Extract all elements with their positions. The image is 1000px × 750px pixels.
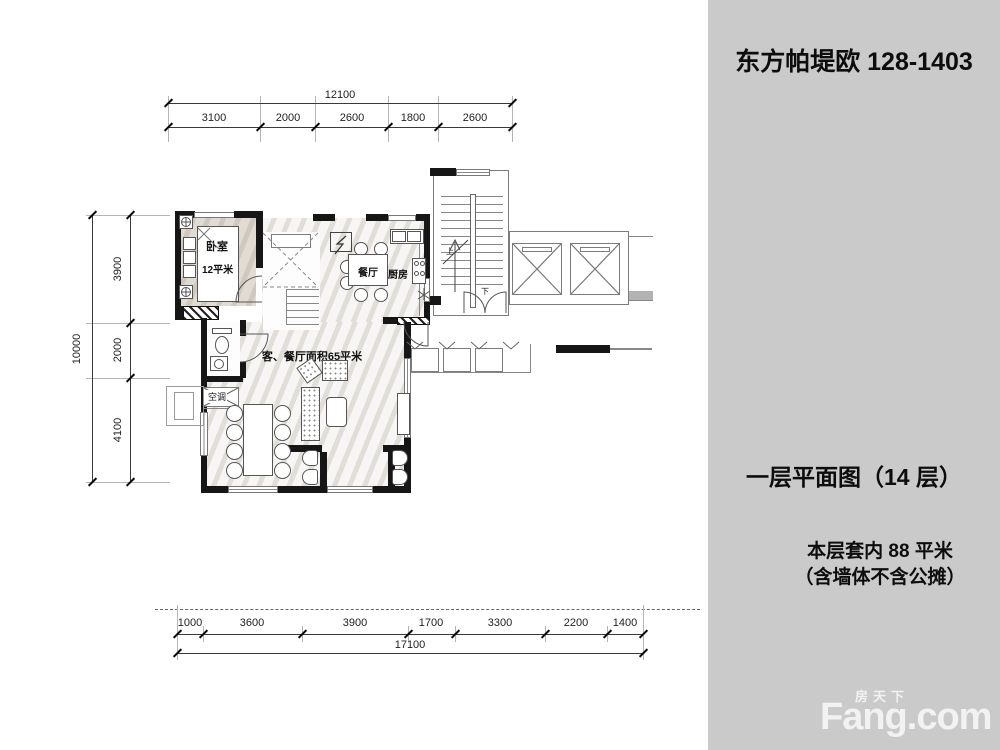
window-kitchen — [388, 215, 416, 221]
wardrobe-cell — [183, 237, 196, 250]
wall-segment — [404, 438, 411, 493]
window-bottom — [228, 486, 278, 493]
wall-segment — [201, 376, 243, 382]
wall-segment — [313, 214, 335, 221]
plan-title: 一层平面图（14 层） — [708, 458, 1000, 492]
radiator-unit — [475, 348, 503, 372]
corridor-line — [629, 236, 653, 237]
chair — [274, 424, 291, 441]
chair — [274, 405, 291, 422]
sink-basin — [214, 359, 224, 369]
corridor-line — [610, 348, 652, 350]
burner — [414, 271, 419, 276]
page-title: 东方帕堤欧 128-1403 — [708, 42, 1000, 78]
dim-line-bottom-total — [177, 653, 643, 654]
dim-top-0: 3100 — [184, 112, 244, 124]
tv-cabinet — [397, 393, 410, 435]
sink-basin — [392, 231, 406, 242]
bedroom-label: 卧室 — [206, 238, 228, 254]
chair — [374, 288, 388, 302]
sofa — [322, 360, 348, 381]
area-line2: （含墙体不含公摊） — [740, 562, 1000, 589]
dim-line-left-total — [92, 215, 93, 482]
dim-top-3: 1800 — [383, 112, 443, 124]
sink-basin — [407, 231, 421, 242]
balcony-chair — [302, 469, 318, 485]
chair — [226, 462, 243, 479]
elevator-1-counterweight — [522, 247, 552, 252]
toilet-bowl — [215, 336, 229, 354]
radiator-unit — [411, 348, 439, 372]
dim-bottom-0: 1000 — [160, 617, 220, 629]
chair — [226, 443, 243, 460]
dim-top-total: 12100 — [310, 89, 370, 101]
chair — [226, 424, 243, 441]
floorplan-page: 东方帕堤欧 128-1403 一层平面图（14 层） 本层套内 88 平米 （含… — [0, 0, 1000, 750]
dim-line-top-total — [168, 103, 513, 104]
stair-tread — [286, 303, 319, 304]
column-symbol — [179, 285, 193, 299]
sofa-long — [301, 387, 320, 441]
coffee-table — [326, 397, 347, 427]
wall-segment — [256, 211, 263, 268]
dining-table-large — [243, 404, 273, 476]
dim-bottom-1: 3600 — [222, 617, 282, 629]
burner — [414, 261, 419, 266]
stair-tread — [286, 324, 319, 325]
burner — [420, 271, 425, 276]
electrical-panel — [330, 232, 352, 252]
corridor-line — [405, 372, 531, 373]
wall-segment — [240, 320, 246, 336]
stair-tread — [286, 289, 319, 290]
dining-label: 餐厅 — [348, 264, 388, 279]
balcony-chair — [392, 450, 408, 466]
chair — [226, 405, 243, 422]
ac-label: 空调 — [207, 390, 227, 403]
dim-bottom-2: 3900 — [325, 617, 385, 629]
wall-segment — [383, 317, 397, 324]
kitchen-label: 厨房 — [388, 266, 408, 281]
wall-segment — [430, 168, 456, 176]
wall-segment — [175, 306, 183, 320]
burner — [420, 261, 425, 266]
stair-tread — [286, 317, 319, 318]
boundary-dashed-line — [155, 609, 700, 610]
dim-left-0: 3900 — [112, 247, 124, 291]
dim-bottom-3: 1700 — [401, 617, 461, 629]
dim-left-1: 2000 — [112, 328, 124, 372]
balcony-chair — [392, 469, 408, 485]
bedroom-area-label: 12平米 — [202, 261, 233, 276]
balcony-chair — [302, 450, 318, 466]
dim-top-4: 2600 — [445, 112, 505, 124]
chair — [274, 462, 291, 479]
column-symbol — [179, 215, 193, 229]
stair-down-label: 下 — [481, 286, 489, 297]
window-bottom — [327, 486, 373, 493]
area-line1: 本层套内 88 平米 — [740, 536, 1000, 563]
elevator-2-counterweight — [580, 247, 610, 252]
dim-line-bottom-seg — [177, 634, 643, 635]
corridor-line — [629, 300, 653, 301]
corridor-line — [530, 344, 531, 373]
stair-landing — [271, 234, 311, 248]
wall-segment — [556, 345, 610, 353]
wardrobe-cell — [183, 251, 196, 264]
stair-tread — [286, 296, 319, 297]
info-panel — [708, 0, 1000, 750]
toilet-tank — [212, 328, 232, 334]
chair — [354, 288, 368, 302]
dim-top-1: 2000 — [258, 112, 318, 124]
wall-segment — [366, 214, 388, 221]
stair-stringer — [470, 194, 476, 308]
chair — [274, 443, 291, 460]
wall-segment — [320, 452, 327, 492]
dim-bottom-4: 3300 — [470, 617, 530, 629]
dim-top-2: 2600 — [322, 112, 382, 124]
stair-up-label: 上 — [446, 246, 454, 257]
window-bedroom — [194, 212, 235, 218]
dim-left-2: 4100 — [112, 408, 124, 452]
wardrobe-cell — [183, 265, 196, 278]
dim-bottom-total: 17100 — [380, 639, 440, 651]
radiator-unit — [443, 348, 471, 372]
watermark-logo: Fang.com — [820, 696, 991, 739]
stair-line — [286, 289, 287, 325]
stair-tread — [286, 310, 319, 311]
dim-line-left-seg — [130, 215, 131, 482]
wall-segment — [404, 322, 411, 358]
window-stairwell — [456, 169, 490, 176]
wall-hatch — [397, 317, 430, 325]
dim-line-top-seg — [168, 127, 513, 128]
dim-bottom-6: 1400 — [595, 617, 655, 629]
ac-unit — [174, 392, 194, 420]
dim-left-total: 10000 — [71, 327, 83, 371]
corridor-gray-bar — [629, 291, 653, 300]
